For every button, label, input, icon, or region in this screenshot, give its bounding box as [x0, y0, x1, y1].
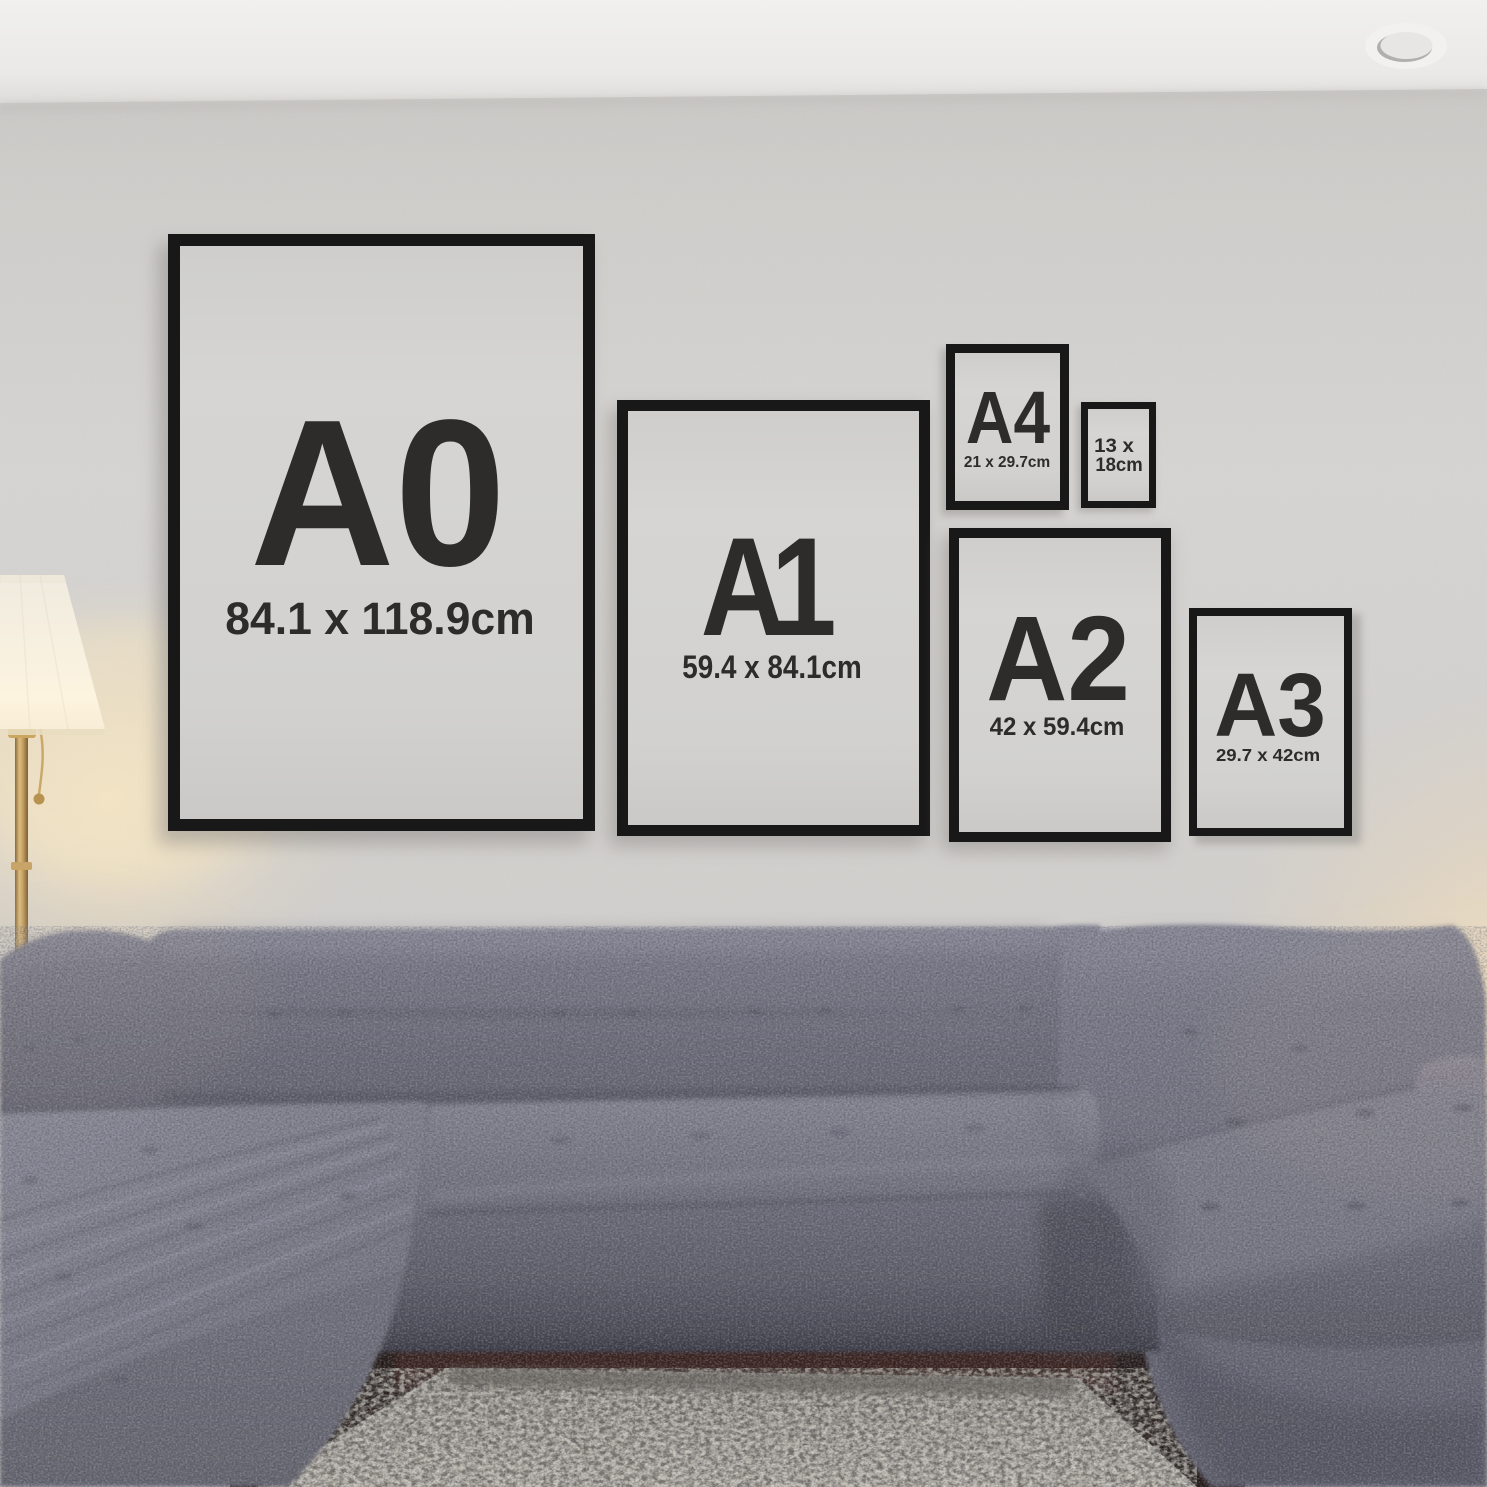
svg-text:59.4 x 84.1cm: 59.4 x 84.1cm — [682, 650, 862, 685]
svg-text:21 x 29.7cm: 21 x 29.7cm — [964, 454, 1050, 471]
svg-text:84.1 x 118.9cm: 84.1 x 118.9cm — [225, 594, 535, 644]
svg-text:29.7 x 42cm: 29.7 x 42cm — [1216, 745, 1320, 764]
svg-text:A0: A0 — [250, 377, 506, 610]
svg-text:42 x 59.4cm: 42 x 59.4cm — [990, 714, 1125, 742]
svg-text:18cm: 18cm — [1095, 455, 1142, 477]
svg-text:A3: A3 — [1214, 655, 1326, 755]
svg-text:A1: A1 — [701, 510, 834, 666]
svg-text:A2: A2 — [986, 590, 1130, 726]
svg-text:A4: A4 — [966, 376, 1050, 458]
